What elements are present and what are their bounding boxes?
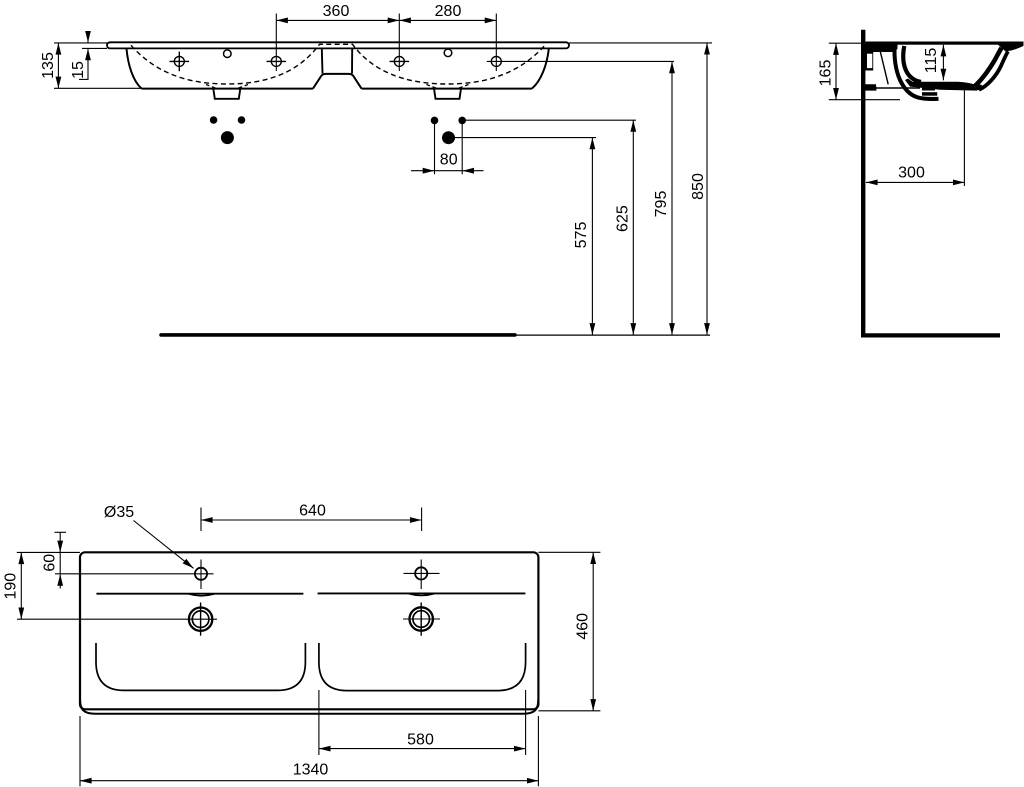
svg-text:165: 165 — [818, 60, 835, 87]
svg-text:1340: 1340 — [293, 762, 329, 779]
svg-text:280: 280 — [435, 3, 462, 20]
svg-text:15: 15 — [70, 61, 87, 79]
svg-text:135: 135 — [40, 52, 57, 79]
svg-text:460: 460 — [574, 613, 591, 640]
svg-text:795: 795 — [653, 191, 670, 218]
svg-text:575: 575 — [573, 222, 590, 249]
svg-text:60: 60 — [42, 554, 59, 572]
svg-text:850: 850 — [690, 173, 707, 200]
svg-text:300: 300 — [898, 164, 925, 181]
svg-text:580: 580 — [407, 731, 434, 748]
svg-text:190: 190 — [2, 573, 19, 600]
svg-text:80: 80 — [440, 151, 458, 168]
svg-text:625: 625 — [614, 205, 631, 232]
svg-text:115: 115 — [923, 48, 940, 74]
svg-text:640: 640 — [299, 503, 326, 520]
svg-text:Ø35: Ø35 — [104, 504, 134, 521]
svg-text:360: 360 — [323, 3, 350, 20]
